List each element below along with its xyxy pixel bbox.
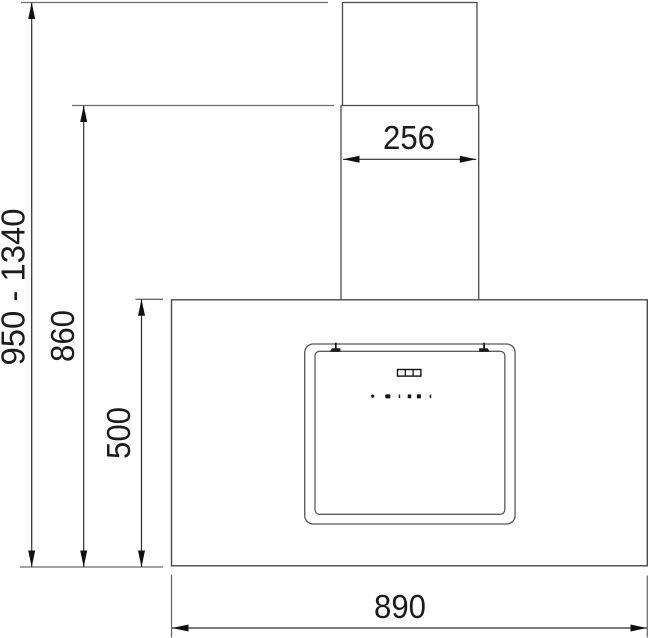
svg-text:950 - 1340: 950 - 1340	[0, 209, 31, 366]
svg-text:256: 256	[383, 119, 435, 156]
svg-text:500: 500	[100, 407, 137, 459]
svg-text:890: 890	[374, 588, 426, 625]
svg-text:860: 860	[44, 310, 81, 362]
